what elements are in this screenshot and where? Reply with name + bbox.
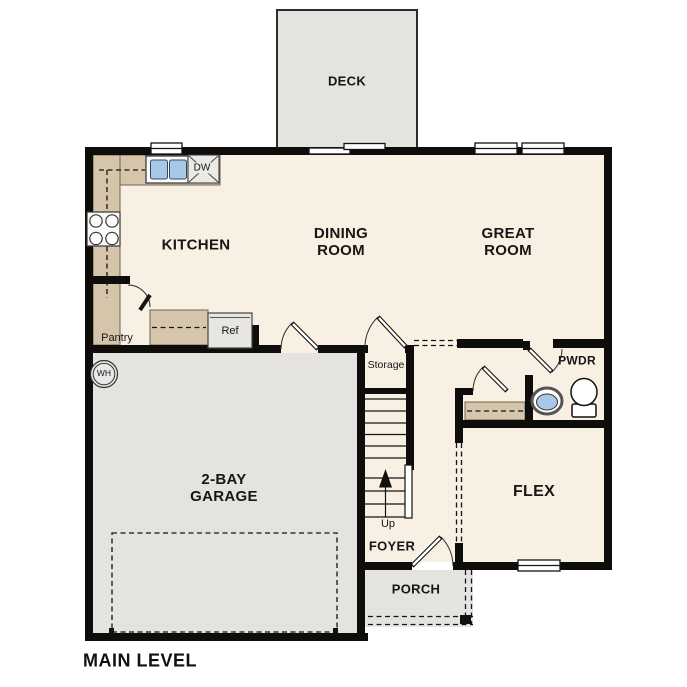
floor-plan: DECK KITCHEN DINING ROOM GREAT ROOM PWDR… <box>0 0 687 687</box>
kitchen-label: KITCHEN <box>162 238 231 255</box>
front-door-opening <box>412 562 453 570</box>
up-label: Up <box>381 518 395 530</box>
storage-label: Storage <box>368 360 405 372</box>
dishwasher-label: DW <box>193 162 212 173</box>
great-room-label: GREAT ROOM <box>473 226 543 260</box>
refrigerator-label: Ref <box>221 325 238 337</box>
porch-label: PORCH <box>392 583 440 598</box>
pantry-label: Pantry <box>101 332 133 344</box>
toilet-icon <box>571 379 597 418</box>
foyer-label: FOYER <box>369 540 415 555</box>
stair-railing <box>405 465 412 518</box>
powder-room-label: PWDR <box>558 354 596 367</box>
water-heater-label: WH <box>97 369 111 379</box>
page-title: MAIN LEVEL <box>83 651 197 672</box>
dining-room-label: DINING ROOM <box>306 226 376 260</box>
porch-floor <box>365 570 473 627</box>
garage-label: 2-BAY GARAGE <box>185 472 263 506</box>
cooktop-icon <box>87 212 120 246</box>
deck-label: DECK <box>328 75 366 90</box>
flex-room-label: FLEX <box>513 483 555 501</box>
powder-sink-icon <box>532 388 562 414</box>
kitchen-sink-icon <box>146 156 188 183</box>
porch-post <box>460 615 471 624</box>
